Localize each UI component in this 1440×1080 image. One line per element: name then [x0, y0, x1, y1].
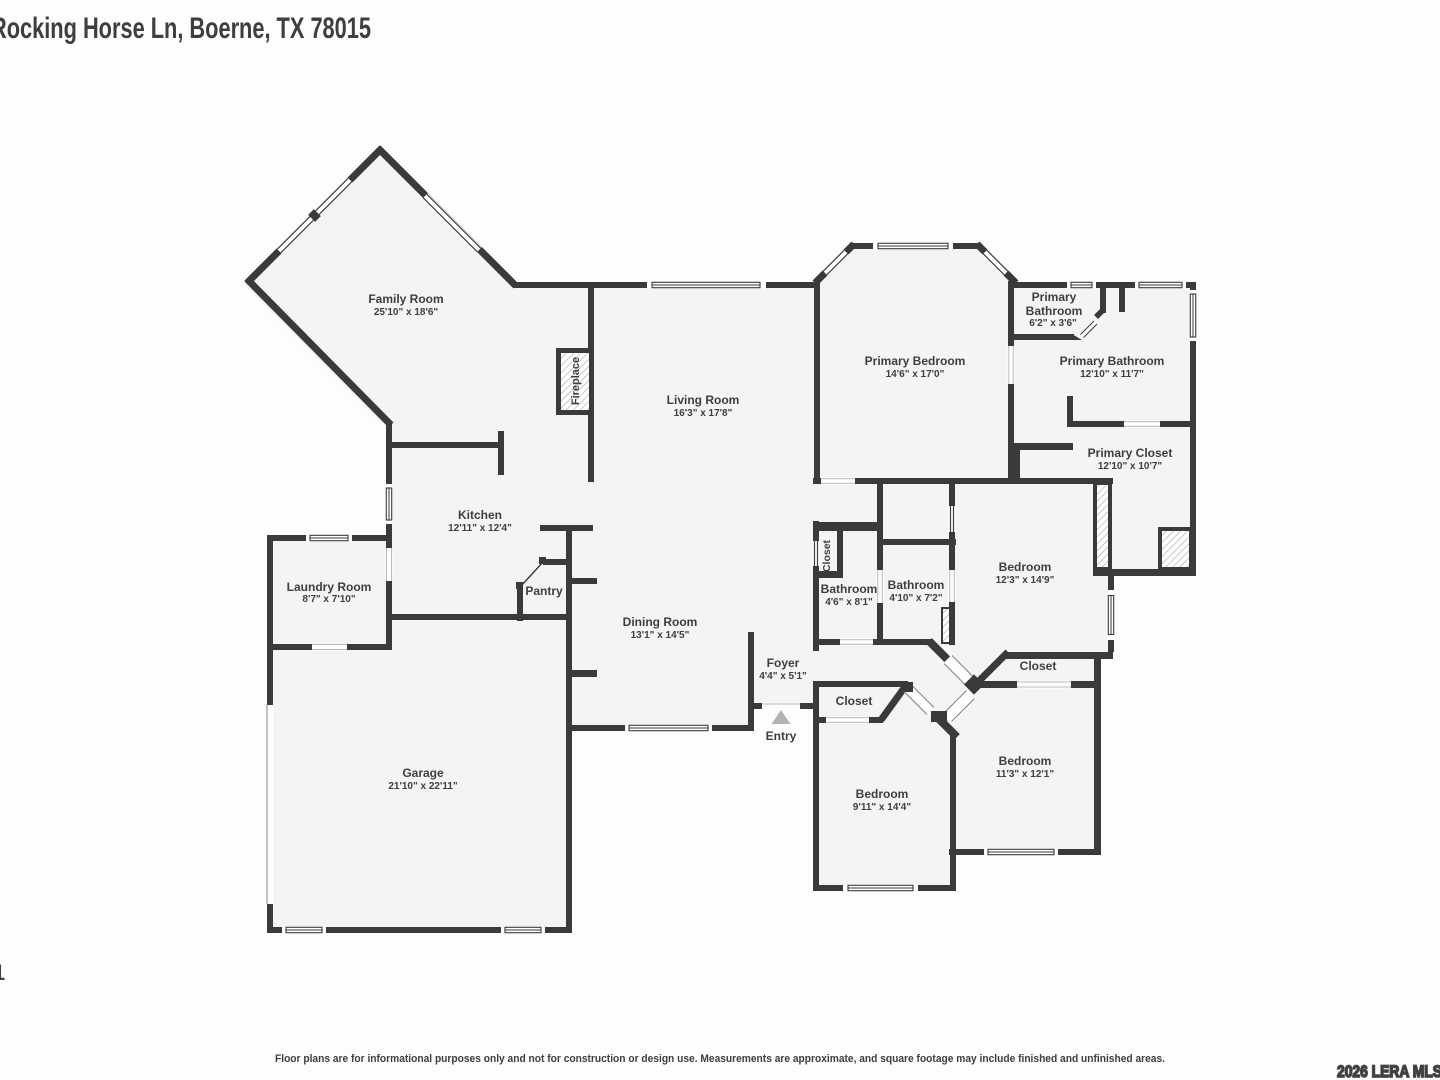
svg-text:4'10" x 7'2": 4'10" x 7'2"	[889, 593, 942, 604]
svg-text:Fireplace: Fireplace	[570, 357, 582, 405]
svg-text:Bedroom: Bedroom	[856, 787, 909, 801]
svg-text:25'10" x 18'6": 25'10" x 18'6"	[374, 307, 439, 318]
svg-text:12'11" x 12'4": 12'11" x 12'4"	[448, 523, 512, 534]
svg-text:Primary Bedroom: Primary Bedroom	[865, 354, 966, 368]
svg-text:4'4" x 5'1": 4'4" x 5'1"	[759, 671, 807, 682]
svg-text:Foyer: Foyer	[767, 656, 800, 670]
svg-text:2026 LERA MLS: 2026 LERA MLS	[1337, 1062, 1440, 1080]
svg-text:12'10" x 11'7": 12'10" x 11'7"	[1080, 369, 1144, 380]
svg-text:13'1" x 14'5": 13'1" x 14'5"	[631, 630, 690, 641]
svg-text:Primary: Primary	[1032, 290, 1077, 304]
svg-text:Family Room: Family Room	[368, 292, 443, 306]
svg-text:6'2" x 3'6": 6'2" x 3'6"	[1029, 318, 1077, 329]
svg-text:21'10" x 22'11": 21'10" x 22'11"	[388, 781, 458, 792]
svg-text:Floor plans are for informatio: Floor plans are for informational purpos…	[275, 1053, 1165, 1065]
svg-text:11'3" x 12'1": 11'3" x 12'1"	[996, 769, 1054, 780]
svg-text:Closet: Closet	[1020, 659, 1057, 673]
svg-text:Primary Closet: Primary Closet	[1088, 446, 1173, 460]
svg-text:9'11" x 14'4": 9'11" x 14'4"	[853, 802, 911, 813]
svg-text:Closet: Closet	[821, 539, 833, 572]
svg-text:14'6" x 17'0": 14'6" x 17'0"	[886, 369, 945, 380]
svg-text:Entry: Entry	[766, 729, 797, 743]
svg-text:Bathroom: Bathroom	[821, 582, 878, 596]
svg-text:Rocking Horse Ln, Boerne, TX 7: Rocking Horse Ln, Boerne, TX 78015	[0, 12, 371, 45]
svg-text:16'3" x 17'8": 16'3" x 17'8"	[674, 408, 733, 419]
svg-text:1: 1	[0, 960, 5, 985]
svg-text:Living Room: Living Room	[667, 393, 740, 407]
svg-text:Bedroom: Bedroom	[999, 560, 1052, 574]
svg-text:4'6" x 8'1": 4'6" x 8'1"	[825, 597, 873, 608]
svg-text:8'7" x 7'10": 8'7" x 7'10"	[302, 594, 355, 605]
svg-text:Bathroom: Bathroom	[888, 578, 945, 592]
svg-text:12'10" x 10'7": 12'10" x 10'7"	[1098, 461, 1163, 472]
svg-text:Dining Room: Dining Room	[623, 615, 698, 629]
svg-text:Pantry: Pantry	[525, 584, 563, 598]
svg-text:Bedroom: Bedroom	[999, 754, 1052, 768]
svg-text:Bathroom: Bathroom	[1026, 304, 1083, 318]
svg-text:12'3" x 14'9": 12'3" x 14'9"	[996, 575, 1055, 586]
svg-text:Garage: Garage	[402, 766, 444, 780]
svg-text:Kitchen: Kitchen	[458, 508, 502, 522]
svg-text:Primary Bathroom: Primary Bathroom	[1060, 354, 1165, 368]
svg-text:Laundry Room: Laundry Room	[287, 580, 372, 594]
svg-text:Closet: Closet	[836, 694, 873, 708]
